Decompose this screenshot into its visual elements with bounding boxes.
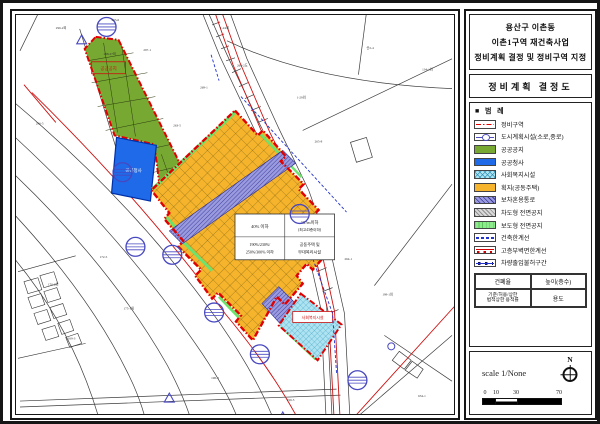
use-value-2: 부대복리시설: [298, 248, 321, 254]
svg-text:1-24외: 1-24외: [220, 25, 229, 30]
legend-swatch-sidewalk-front: [474, 221, 496, 230]
svg-text:269-1: 269-1: [200, 86, 208, 90]
legend-item-mixed-passage: 보차혼용통로: [474, 194, 587, 207]
scale-bar: 0 10 30 70: [482, 390, 566, 410]
svg-text:263-5: 263-5: [173, 123, 181, 127]
svg-text:175-1외: 175-1외: [124, 306, 135, 311]
spec-coverage-header: 건폐율: [475, 274, 531, 289]
cadastral-cluster: [18, 256, 86, 358]
legend-swatch-building-limit: [474, 233, 496, 242]
svg-text:1-29외: 1-29외: [297, 95, 306, 100]
project-location: 용산구 이촌동: [470, 21, 591, 34]
svg-text:296-2외: 296-2외: [56, 25, 67, 30]
scale-bar-ticks: 0 10 30 70: [482, 390, 566, 398]
svg-text:297-1: 297-1: [143, 48, 151, 52]
legend-swatch-public-open-space: [474, 145, 496, 154]
legend-swatch-mixed-passage: [474, 196, 496, 205]
legend-swatch-road-facility: [474, 133, 496, 142]
svg-text:169-3: 169-3: [68, 336, 76, 340]
legend-swatch-no-vehicle-access: [474, 259, 496, 268]
coverage-value: 40% 이하: [251, 223, 269, 230]
legend-swatch-housing-lot: [474, 183, 496, 192]
svg-text:172-5: 172-5: [100, 255, 108, 259]
sheet-frame: 공공공지 공공청사: [0, 0, 600, 424]
svg-text:634-1: 634-1: [418, 394, 426, 398]
legend-item-boundary: 정비구역: [474, 118, 587, 131]
legend-square-icon: ■: [475, 107, 481, 115]
zone-spec-table: 40% 이하 167m이하 (최고43층이하) 190%/230%/ 250%/…: [235, 214, 335, 260]
svg-text:198-4: 198-4: [211, 376, 219, 380]
svg-text:268-2도: 268-2도: [237, 64, 248, 68]
scale-text: scale 1/None: [482, 368, 526, 378]
legend-spec-table: 건폐율 높이(층수) 기준/허용/상한 법적상한 용적률 용도: [474, 273, 587, 308]
cyan-area-label: 사회복지시설: [302, 315, 324, 320]
legend-item-road-facility: 도시계획시설(소로,중로): [474, 131, 587, 144]
legend-item-housing-lot: 획지(공동주택): [474, 181, 587, 194]
drawing-title: 정비계획 결정도: [488, 80, 572, 93]
legend-swatch-highrise-wall-limit: [474, 246, 496, 255]
scale-bar-segments: [482, 398, 562, 405]
legend-item-no-vehicle-access: 차량출입불허구간: [474, 257, 587, 270]
site-plan-map: 공공공지 공공청사: [16, 15, 454, 414]
svg-text:199-1외: 199-1외: [382, 292, 393, 297]
legend-item-roadway-front: 차도형 전면공지: [474, 206, 587, 219]
svg-text:199-5: 199-5: [287, 398, 295, 402]
legend-header: ■ 범 례: [475, 106, 587, 116]
blue-area-label: 공공청사: [125, 167, 141, 174]
north-compass-icon: N: [559, 356, 581, 386]
green-area-label: 공공공지: [100, 65, 116, 72]
info-panel: 용산구 이촌동 이촌1구역 재건축사업 정비계획 결정 및 정비구역 지정 정비…: [464, 9, 597, 420]
north-label: N: [567, 355, 572, 364]
far-value-2: 250%/300% 이하: [246, 249, 274, 254]
legend-box: ■ 범 례 정비구역 도시계획시설(소로,중로) 공공공지 공공청사: [469, 102, 592, 347]
svg-text:264-1: 264-1: [344, 257, 352, 261]
svg-text:296-5: 296-5: [36, 121, 44, 125]
legend-item-public-office: 공공청사: [474, 156, 587, 169]
legend-item-building-limit: 건축한계선: [474, 231, 587, 244]
drawing-title-box: 정비계획 결정도: [469, 74, 592, 98]
svg-text:170-2외: 170-2외: [48, 282, 59, 287]
svg-text:265-8: 265-8: [315, 139, 323, 143]
project-title-box: 용산구 이촌동 이촌1구역 재건축사업 정비계획 결정 및 정비구역 지정: [469, 14, 592, 70]
legend-swatch-welfare-facility: [474, 170, 496, 179]
map-panel: 공공공지 공공청사: [10, 9, 460, 420]
legend-header-label: 범 례: [485, 107, 506, 115]
legend-swatch-boundary: [474, 120, 496, 129]
svg-text:134-1외: 134-1외: [422, 67, 433, 72]
map-inner-frame: 공공공지 공공청사: [15, 14, 455, 415]
project-name: 이촌1구역 재건축사업: [470, 36, 591, 49]
legend-item-sidewalk-front: 보도형 전면공지: [474, 219, 587, 232]
legend-swatch-public-office: [474, 158, 496, 167]
spec-far-header: 기준/허용/상한 법적상한 용적률: [475, 289, 531, 307]
project-action: 정비계획 결정 및 정비구역 지정: [470, 51, 591, 64]
use-value-1: 공동주택 및: [300, 241, 320, 247]
svg-text:산2-4: 산2-4: [366, 45, 374, 50]
svg-text:295-6: 295-6: [112, 18, 120, 22]
spec-height-header: 높이(층수): [531, 274, 587, 289]
legend-item-public-open-space: 공공공지: [474, 143, 587, 156]
legend-item-highrise-wall-limit: 고층부벽면한계선: [474, 244, 587, 257]
height-value-2: (최고43층이하): [298, 227, 322, 232]
far-value-1: 190%/230%/: [250, 242, 272, 247]
spec-use-header: 용도: [531, 289, 587, 307]
svg-text:298-27외: 298-27외: [104, 51, 116, 56]
legend-swatch-roadway-front: [474, 208, 496, 217]
scale-box: scale 1/None N 0 10 30 70: [469, 351, 592, 415]
legend-item-welfare-facility: 사회복지시설: [474, 168, 587, 181]
